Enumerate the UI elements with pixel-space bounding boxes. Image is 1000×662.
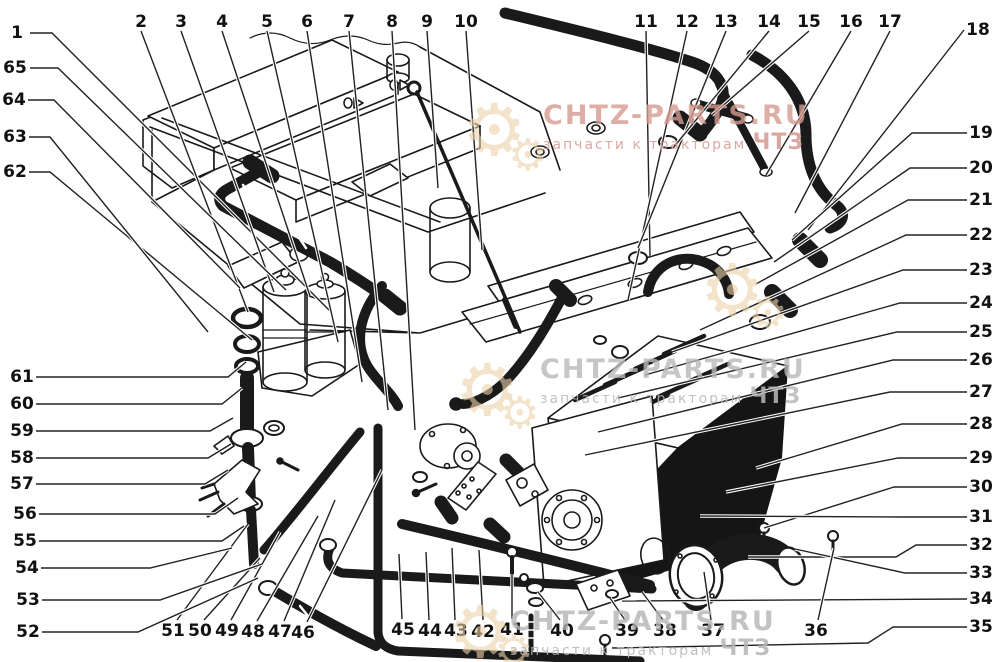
callout-number: 39 bbox=[615, 621, 639, 641]
callout-number: 20 bbox=[969, 158, 993, 178]
callout-number: 64 bbox=[2, 90, 26, 110]
callout-number: 34 bbox=[969, 589, 993, 609]
callout-number: 47 bbox=[268, 622, 292, 642]
callout-number: 13 bbox=[714, 12, 738, 32]
callout-number: 4 bbox=[216, 12, 228, 32]
leader-line bbox=[39, 526, 244, 541]
callout-number: 25 bbox=[969, 322, 993, 342]
callout-number: 58 bbox=[10, 448, 34, 468]
leader-line bbox=[756, 424, 967, 468]
leader-line bbox=[764, 487, 967, 528]
callout-number: 22 bbox=[969, 225, 993, 245]
leader-line bbox=[36, 388, 242, 404]
callout-number: 16 bbox=[839, 12, 863, 32]
leader-line bbox=[257, 516, 318, 621]
callout-number: 57 bbox=[10, 474, 34, 494]
callout-number: 45 bbox=[391, 620, 415, 640]
callout-number: 24 bbox=[969, 293, 993, 313]
leader-line bbox=[642, 592, 663, 620]
callout-number: 42 bbox=[471, 622, 495, 642]
callout-number: 5 bbox=[261, 12, 273, 32]
callout-number: 65 bbox=[3, 58, 27, 78]
leader-line bbox=[36, 444, 231, 458]
callout-number: 50 bbox=[188, 621, 212, 641]
callout-number: 18 bbox=[966, 20, 990, 40]
callout-number: 61 bbox=[10, 367, 34, 387]
callout-number: 26 bbox=[969, 350, 993, 370]
hose-branch bbox=[719, 84, 764, 168]
callout-number: 17 bbox=[878, 12, 902, 32]
callout-number: 54 bbox=[15, 558, 39, 578]
callout-number: 37 bbox=[701, 621, 725, 641]
callout-number: 36 bbox=[804, 621, 828, 641]
leader-line bbox=[36, 418, 233, 431]
callout-number: 48 bbox=[241, 622, 265, 642]
parts-diagram-page: 1234567891011121314151617181920212223242… bbox=[0, 0, 1000, 662]
leader-line bbox=[756, 424, 967, 468]
callout-number: 46 bbox=[291, 623, 315, 643]
leader-line bbox=[764, 487, 967, 528]
leader-line bbox=[392, 31, 415, 430]
callout-number: 32 bbox=[969, 535, 993, 555]
parts-diagram-illustration: 1234567891011121314151617181920212223242… bbox=[0, 0, 1000, 662]
callout-number: 23 bbox=[969, 260, 993, 280]
leader-line bbox=[795, 549, 967, 573]
callout-number: 31 bbox=[969, 507, 993, 527]
callout-number: 15 bbox=[797, 12, 821, 32]
leader-line bbox=[36, 470, 228, 484]
callout-number: 43 bbox=[444, 621, 468, 641]
callout-number: 52 bbox=[16, 622, 40, 642]
callout-number: 51 bbox=[161, 621, 185, 641]
leader-line bbox=[818, 548, 834, 620]
callout-number: 59 bbox=[10, 421, 34, 441]
callout-number: 11 bbox=[634, 12, 658, 32]
callout-number: 60 bbox=[10, 394, 34, 414]
callout-number: 53 bbox=[16, 590, 40, 610]
callout-number: 1 bbox=[11, 23, 23, 43]
callout-number: 63 bbox=[3, 127, 27, 147]
callout-number: 35 bbox=[969, 617, 993, 637]
perforated-tube bbox=[448, 462, 496, 510]
leader-line bbox=[36, 388, 242, 404]
leader-line bbox=[307, 470, 382, 622]
callout-number: 62 bbox=[3, 162, 27, 182]
callout-number: 55 bbox=[13, 531, 37, 551]
leader-line bbox=[36, 418, 233, 431]
leader-line bbox=[36, 444, 231, 458]
callout-number: 41 bbox=[500, 620, 524, 640]
callout-number: 56 bbox=[13, 504, 37, 524]
leader-line bbox=[36, 362, 246, 377]
callout-number: 38 bbox=[653, 621, 677, 641]
leader-line bbox=[538, 592, 560, 620]
callout-number: 3 bbox=[175, 12, 187, 32]
leader-line bbox=[39, 498, 238, 514]
leader-line bbox=[39, 526, 244, 541]
leader-line bbox=[672, 270, 967, 352]
callout-number: 10 bbox=[454, 12, 478, 32]
leader-line bbox=[673, 31, 769, 148]
leader-line bbox=[672, 270, 967, 352]
callout-number: 14 bbox=[757, 12, 781, 32]
callout-number: 21 bbox=[969, 190, 993, 210]
callout-number: 28 bbox=[969, 414, 993, 434]
callout-number: 12 bbox=[675, 12, 699, 32]
callout-number: 7 bbox=[343, 12, 355, 32]
leader-line bbox=[39, 498, 238, 514]
water-pump bbox=[420, 424, 480, 469]
leader-line bbox=[41, 548, 232, 568]
callout-number: 33 bbox=[969, 563, 993, 583]
callout-number: 6 bbox=[301, 12, 313, 32]
leader-line bbox=[41, 548, 232, 568]
callout-number: 9 bbox=[421, 12, 433, 32]
callout-number: 8 bbox=[386, 12, 398, 32]
callout-number: 19 bbox=[969, 123, 993, 143]
callout-number: 40 bbox=[550, 621, 574, 641]
callout-number: 2 bbox=[135, 12, 147, 32]
callout-number: 30 bbox=[969, 477, 993, 497]
leader-line bbox=[36, 470, 228, 484]
callout-number: 49 bbox=[215, 621, 239, 641]
callout-number: 29 bbox=[969, 448, 993, 468]
callout-number: 27 bbox=[969, 382, 993, 402]
callout-number: 44 bbox=[418, 621, 442, 641]
leader-line bbox=[36, 362, 246, 377]
